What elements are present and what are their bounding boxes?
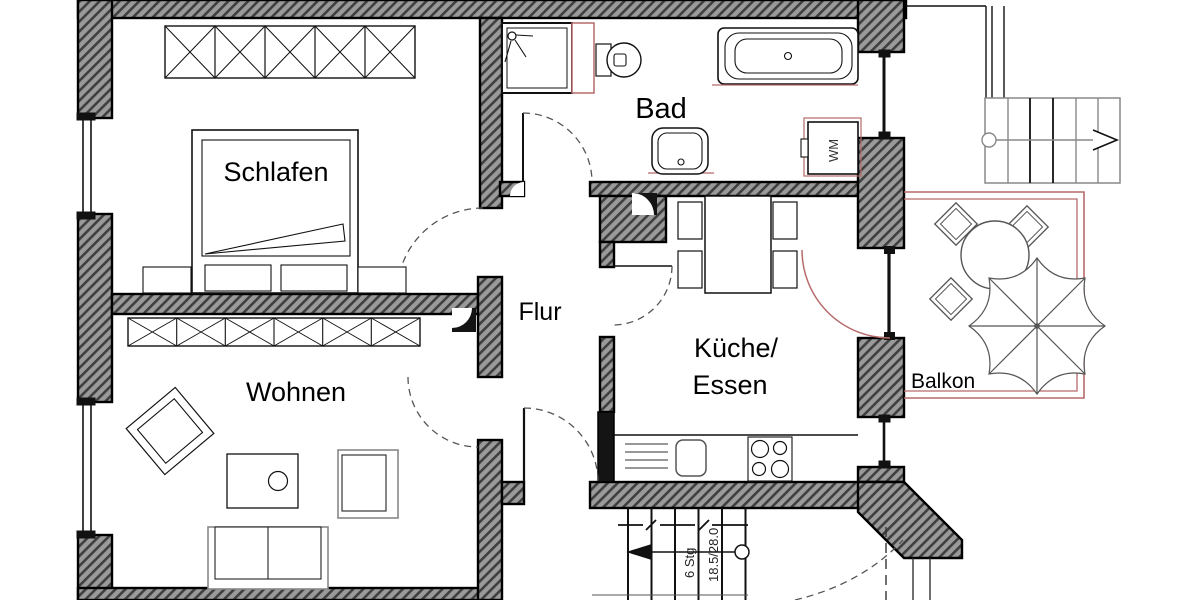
label-bad: Bad [635, 93, 687, 125]
floor-plan-drawing: Schlafen Bad Flur Küche/ Essen Wohnen Ba… [0, 0, 1200, 600]
chair-icon [678, 202, 702, 239]
wall-left-upper [78, 0, 112, 118]
label-balkon: Balkon [911, 370, 975, 393]
wall-flur-left-mid [478, 277, 502, 377]
door-entrance [524, 408, 598, 482]
chair-icon [773, 202, 797, 239]
coffee-table-icon [227, 454, 298, 508]
stairs-down-arrow-icon [628, 545, 650, 559]
bathtub-icon [718, 28, 858, 84]
armchair-icon [338, 450, 398, 518]
door-bad [523, 113, 592, 182]
wall-stub-entry [502, 482, 524, 504]
balcony-chair-icon [930, 278, 972, 320]
stairs-upper-rails [906, 6, 1004, 98]
wall-right-c [858, 338, 904, 417]
wall-bottom-kitchen [590, 482, 872, 508]
stairs-break-line [618, 520, 748, 530]
chair-icon [678, 251, 702, 288]
door-arc-schlafen [397, 208, 483, 294]
door-arc-wohnen [408, 377, 478, 447]
wall-kitchen-left-column [598, 412, 614, 482]
label-stair-steps: 6 Stg [682, 548, 697, 578]
label-kueche-line1: Küche/ [694, 333, 779, 363]
dining-table-icon [678, 196, 797, 293]
floor-plan: Schlafen Bad Flur Küche/ Essen Wohnen Ba… [0, 0, 1200, 600]
wall-right-b [858, 138, 904, 248]
toilet-icon [596, 43, 641, 77]
wall-right-a [858, 0, 904, 52]
balcony-furniture [930, 203, 1105, 394]
wall-diagonal [858, 482, 962, 558]
bathroom-sink-icon [648, 128, 714, 174]
wall-left-middle [78, 214, 112, 402]
label-schlafen: Schlafen [223, 157, 328, 187]
stove-icon [748, 437, 792, 481]
label-flur: Flur [518, 298, 561, 326]
umbrella-icon [969, 258, 1105, 394]
kitchen-counter [614, 435, 858, 481]
shower-icon [502, 23, 572, 93]
room-wohnen [126, 318, 420, 589]
wall-flur-left-low [478, 440, 502, 600]
label-stair-dimension: 18.5/28.0 [706, 528, 721, 582]
wall-divider-schlafen-wohnen [112, 294, 478, 314]
window-wohnen [77, 398, 95, 538]
wall-top [78, 0, 906, 18]
bed-icon [192, 130, 358, 293]
stairs-upper [906, 6, 1120, 183]
wall-kitchen-left-b [600, 337, 614, 412]
label-washing-machine: WM [826, 139, 841, 162]
door-kitchen [613, 266, 672, 325]
wall-bad-bottom [590, 182, 862, 196]
nightstand-left-icon [143, 267, 191, 293]
wall-divider-schlafen-bad [480, 18, 502, 208]
door-balcony [802, 246, 895, 340]
label-wohnen: Wohnen [246, 377, 346, 407]
window-bad [879, 50, 890, 139]
stairwell-rails [913, 558, 930, 600]
kitchen-sink-icon [625, 440, 706, 476]
nightstand-right-icon [358, 267, 406, 293]
shower-screen [572, 23, 594, 93]
shelf-icon [128, 318, 420, 346]
label-kueche-line2: Essen [692, 370, 767, 400]
balcony [904, 192, 1105, 398]
stairwell-door-arc [795, 540, 903, 600]
wall-right-d [858, 467, 904, 482]
wardrobe-icon [165, 26, 415, 78]
wall-kitchen-left-a [600, 242, 614, 267]
window-schlafen [77, 113, 95, 219]
chair-icon [773, 251, 797, 288]
armchair-rotated-icon [126, 387, 214, 474]
sofa-icon [208, 527, 328, 589]
window-kitchen [879, 415, 890, 468]
